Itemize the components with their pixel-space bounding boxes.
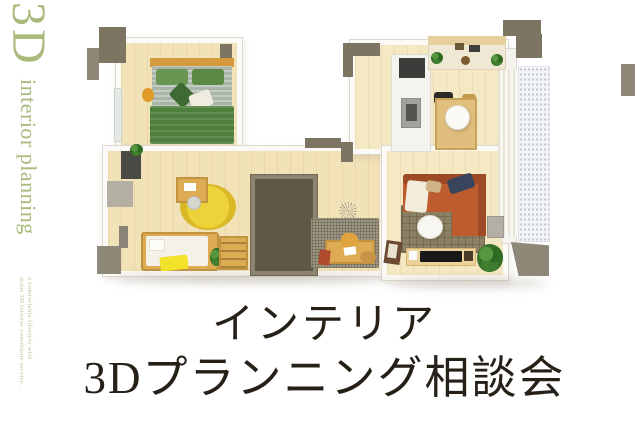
kids-chair <box>187 196 201 210</box>
wall-cap-top-right-stem <box>516 34 542 58</box>
coffee-maker <box>461 56 470 65</box>
tv-deco-dark <box>464 251 473 261</box>
bedroom-window <box>114 88 122 142</box>
kids-shelf <box>219 236 248 270</box>
study-red-box <box>318 249 331 265</box>
tv-deco <box>409 251 417 260</box>
sofa-cushion-tan <box>425 180 442 193</box>
sink-basin <box>406 104 417 121</box>
hallway-wall-h <box>305 138 341 148</box>
hallway-shelf <box>107 181 133 207</box>
wall-cap-kitchen-stem <box>343 43 353 77</box>
sofa-arm <box>478 174 486 236</box>
bed-blanket <box>150 106 234 144</box>
balcony-railing <box>518 66 550 242</box>
balcony-ac-unit <box>487 216 504 238</box>
wall-cap-right-edge <box>621 64 635 96</box>
plan-shadow <box>115 274 385 284</box>
magazine-pages <box>387 243 398 258</box>
bedside-stool <box>142 88 154 102</box>
tv <box>420 251 462 262</box>
cabinet-item <box>455 43 464 50</box>
pendant-lamp <box>445 105 470 130</box>
event-headline: インテリア 3Dプランニング相談会 <box>20 301 629 403</box>
walk-in-closet <box>251 175 317 275</box>
wall-cap-bottom-left <box>97 246 121 274</box>
kids-yellow-blanket <box>159 255 188 272</box>
study-side-table <box>360 251 376 263</box>
headline-line1: インテリア <box>20 301 629 351</box>
cooktop <box>399 58 425 78</box>
kids-desk-paper <box>184 183 196 191</box>
wall-cap-top-left-wing <box>87 48 99 80</box>
hallway-door <box>119 226 128 248</box>
plan-shadow <box>388 278 548 288</box>
wall-cap-top-left <box>99 27 126 63</box>
curtain <box>498 70 520 236</box>
coffee-table <box>417 215 443 239</box>
study-papers <box>344 246 357 256</box>
kids-pillow <box>149 239 165 251</box>
cabinet-counter-top <box>428 36 506 45</box>
wall-cap-bottom-right <box>511 242 549 276</box>
hallway-wall-v <box>341 142 353 162</box>
headline-line2: 3Dプランニング相談会 <box>20 353 629 403</box>
starburst-clock <box>339 202 357 220</box>
pillow <box>192 69 224 85</box>
cabinet-item <box>469 45 480 52</box>
flyer-poster: 3Dinterior planning a comfortable lifest… <box>0 0 635 421</box>
